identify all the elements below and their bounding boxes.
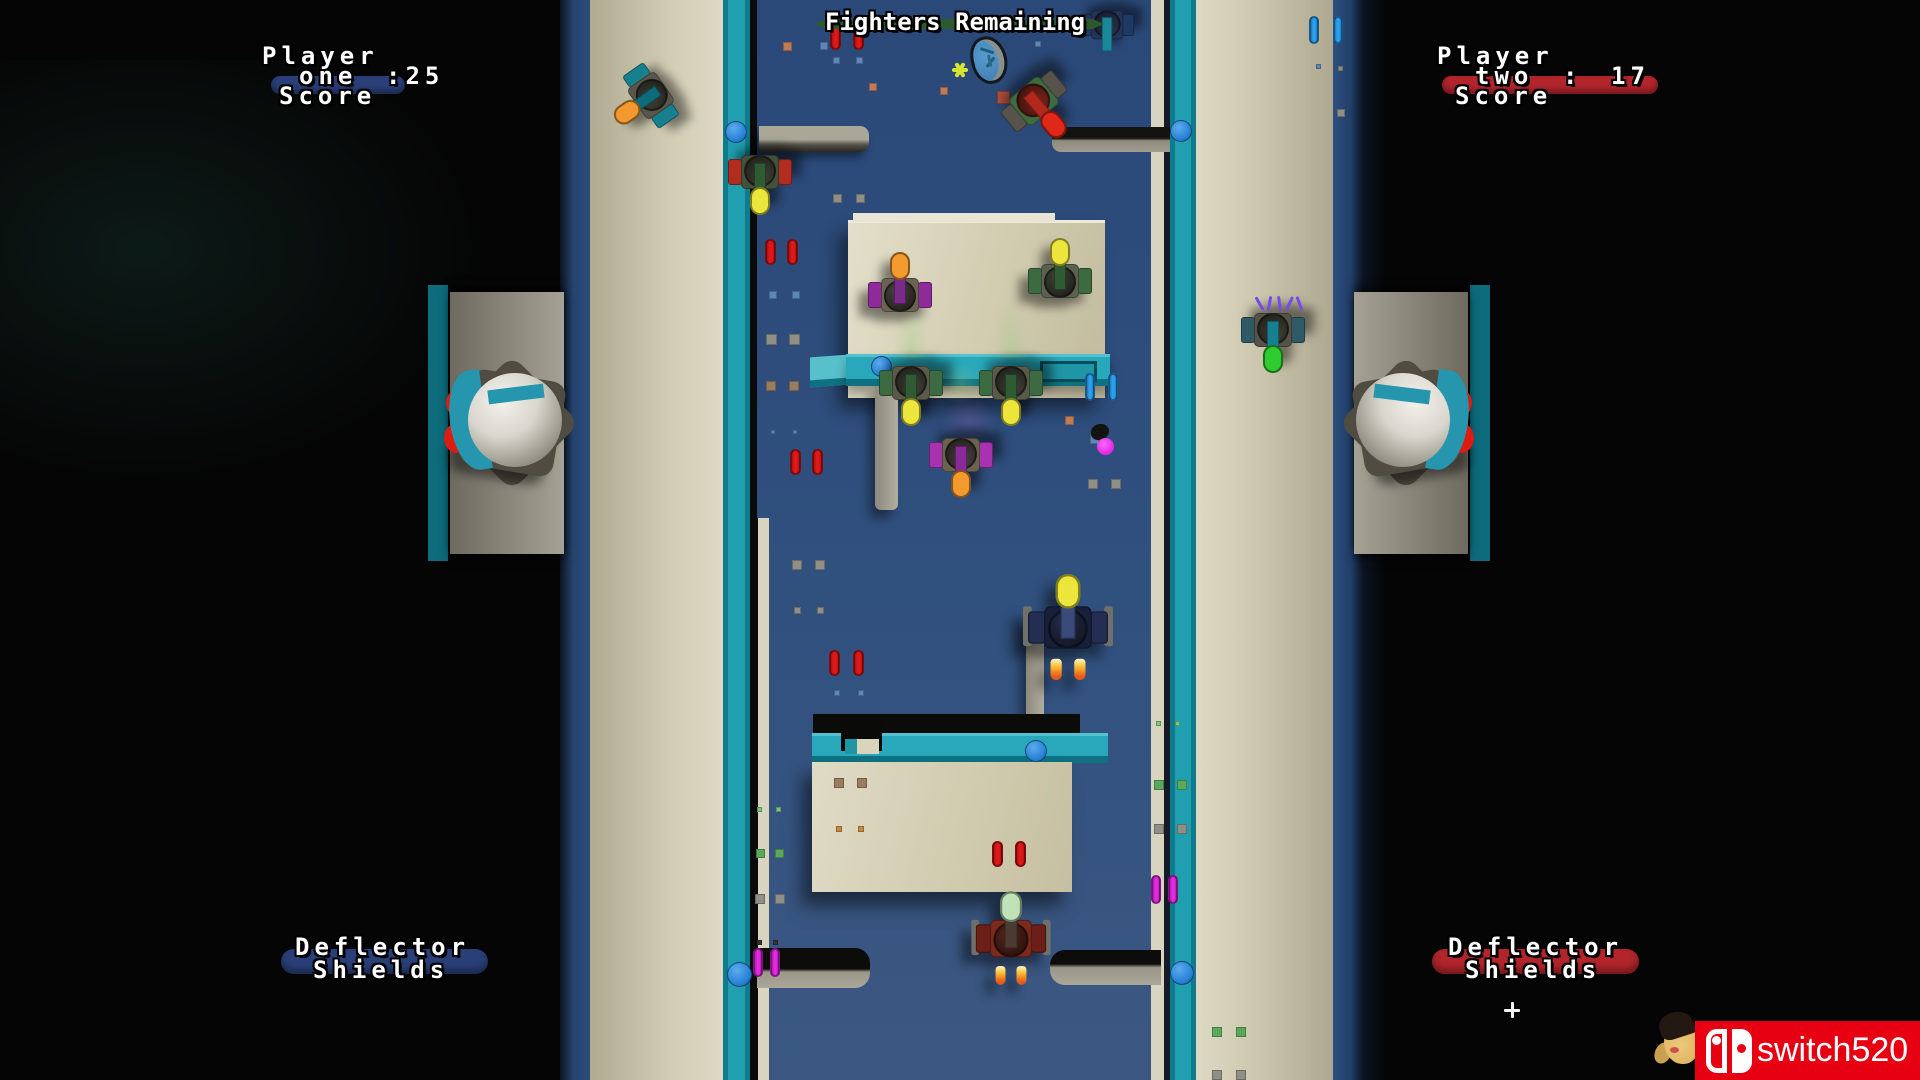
debris-particle — [1212, 1070, 1222, 1080]
purple-tank-lower — [929, 424, 993, 498]
debris-particle — [775, 849, 784, 858]
debris-particle — [775, 894, 785, 904]
green-tank-mid-right — [979, 352, 1043, 426]
red-projectile — [790, 449, 801, 475]
debris-particle — [1337, 109, 1345, 117]
portal-dot — [1170, 961, 1194, 985]
portal-dot — [1170, 120, 1192, 142]
debris-particle — [757, 807, 762, 812]
mascot-blush — [1670, 1047, 1679, 1053]
debris-particle — [792, 291, 800, 299]
ship-wing — [1078, 268, 1092, 294]
red-projectile — [1015, 841, 1026, 867]
magenta-projectile — [1151, 875, 1161, 904]
debris-particle — [793, 430, 797, 434]
fighter-ship-center — [1028, 574, 1108, 667]
ship-shield-bubble — [1263, 345, 1283, 373]
fighters-remaining-label: Fighters Remaining — [825, 8, 1085, 36]
spark — [1254, 296, 1264, 310]
blue-projectile — [1333, 16, 1343, 44]
debris-particle — [817, 607, 824, 614]
debris-particle — [1175, 721, 1180, 726]
debris-particle — [1316, 64, 1321, 69]
ship-wing — [1028, 611, 1046, 644]
ship-wing — [918, 282, 932, 308]
ship-shield-bubble — [1000, 891, 1022, 922]
debris-particle — [858, 826, 864, 832]
debris-particle — [858, 690, 864, 696]
green-tank-upper — [1028, 238, 1092, 312]
ship-wing — [1029, 370, 1043, 396]
debris-particle — [769, 291, 777, 299]
red-projectile — [812, 449, 823, 475]
asteroid-sprite — [966, 33, 1011, 87]
debris-particle — [1154, 780, 1164, 790]
thruster-flame — [1074, 659, 1085, 680]
portal-dot — [1025, 740, 1047, 762]
debris-particle — [1111, 479, 1121, 489]
ship-shield-bubble — [1056, 574, 1081, 609]
thruster-flame — [1051, 659, 1062, 680]
sparkle — [1504, 1002, 1520, 1018]
debris-particle — [792, 560, 802, 570]
debris-particle — [856, 194, 865, 203]
debris-particle — [789, 381, 799, 391]
debris-particle — [856, 57, 863, 64]
player-two-colon: : — [1563, 62, 1582, 90]
red-projectile — [829, 650, 840, 676]
debris-particle — [833, 194, 842, 203]
ship-wing — [868, 282, 882, 308]
ship-wing — [979, 370, 993, 396]
player-two-score: 17 — [1611, 62, 1650, 90]
ship-wing — [1028, 268, 1042, 294]
ship-wing — [1291, 317, 1305, 343]
debris-particle — [757, 940, 762, 945]
debris-particle — [766, 334, 777, 345]
ship-wing — [1091, 611, 1109, 644]
debris-particle — [834, 778, 844, 788]
blue-projectile — [1085, 373, 1095, 401]
impact-burst — [950, 60, 970, 80]
nintendo-switch-icon-dot — [1737, 1044, 1746, 1053]
magenta-projectile — [770, 948, 780, 977]
teal-ship-top-left — [597, 52, 694, 147]
magenta-projectile — [753, 948, 763, 977]
debris-particle — [771, 430, 775, 434]
watermark-text: switch520 — [1757, 1031, 1908, 1070]
ship-wing — [728, 159, 742, 185]
ship-shield-bubble — [1001, 398, 1021, 426]
game-screen[interactable]: Fighters Remaining Player one :25 Score … — [0, 0, 1920, 1080]
red-projectile — [787, 239, 798, 265]
debris-particle — [815, 560, 825, 570]
debris-particle — [820, 42, 828, 50]
debris-particle — [1177, 780, 1187, 790]
spark — [1267, 296, 1273, 311]
debris-particle — [783, 42, 792, 51]
player-two-caption: Score — [1455, 82, 1552, 110]
ship-shield-bubble — [1050, 238, 1070, 266]
debris-particle — [755, 894, 765, 904]
debris-particle — [833, 57, 840, 64]
thruster-flame — [996, 966, 1006, 985]
debris-particle — [1212, 1027, 1222, 1037]
spark — [1277, 296, 1282, 311]
nintendo-switch-icon-dot — [1712, 1036, 1721, 1045]
red-green-tank-left — [728, 141, 792, 215]
debris-particle — [756, 849, 765, 858]
debris-particle — [776, 807, 781, 812]
debris-particle — [1065, 416, 1074, 425]
debris-particle — [1338, 66, 1343, 71]
ship-wing — [979, 442, 993, 468]
ship-wing — [929, 370, 943, 396]
debris-particle — [789, 334, 800, 345]
debris-particle — [1177, 824, 1187, 834]
debris-particle — [869, 83, 877, 91]
ship-shield-bubble — [951, 470, 971, 498]
ship-shield-bubble — [750, 187, 770, 215]
debris-particle — [1236, 1070, 1246, 1080]
debris-particle — [766, 381, 776, 391]
blue-tank-corner — [1080, 0, 1134, 61]
deflector-left-line2: Shields — [313, 956, 449, 984]
debris-particle — [1035, 41, 1041, 47]
debris-particle — [857, 778, 867, 788]
debris-particle — [834, 690, 840, 696]
ship-barrel — [1102, 17, 1112, 51]
red-ship-bottom — [976, 891, 1046, 972]
deflector-right-line2: Shields — [1465, 956, 1601, 984]
entity-layer — [0, 0, 1920, 1080]
blue-projectile — [1309, 16, 1319, 44]
blue-projectile — [1108, 373, 1118, 401]
debris-particle — [1236, 1027, 1246, 1037]
sparkle-ray — [1504, 1009, 1520, 1012]
energy-ball — [1097, 438, 1114, 455]
ship-wing — [929, 442, 943, 468]
ship-wing — [1122, 14, 1134, 36]
thruster-flame — [1017, 966, 1027, 985]
ship-shield-bubble — [890, 252, 910, 280]
debris-particle — [1156, 721, 1161, 726]
debris-particle — [794, 607, 801, 614]
plume-effect — [993, 296, 1029, 358]
ship-wing — [1031, 924, 1046, 953]
debris-particle — [773, 940, 778, 945]
ship-wing — [778, 159, 792, 185]
portal-dot — [727, 962, 752, 987]
portal-dot — [725, 121, 747, 143]
asteroid-crack — [980, 47, 994, 54]
spark — [1285, 296, 1294, 311]
red-projectile — [992, 841, 1003, 867]
ship-wing — [976, 924, 991, 953]
debris-particle — [836, 826, 842, 832]
spark — [1296, 296, 1304, 311]
red-projectile — [853, 650, 864, 676]
debris-particle — [940, 87, 948, 95]
purple-tank-upper — [868, 252, 932, 326]
player-one-score: :25 — [386, 62, 444, 90]
damage-sparks — [1256, 292, 1306, 318]
ship-wing — [1241, 317, 1255, 343]
player-one-caption: Score — [279, 82, 376, 110]
debris-particle — [1088, 479, 1098, 489]
ship-shield-bubble — [901, 398, 921, 426]
green-tank-mid-left — [879, 352, 943, 426]
debris-particle — [1154, 824, 1164, 834]
magenta-projectile — [1168, 875, 1178, 904]
red-projectile — [765, 239, 776, 265]
ship-wing — [879, 370, 893, 396]
